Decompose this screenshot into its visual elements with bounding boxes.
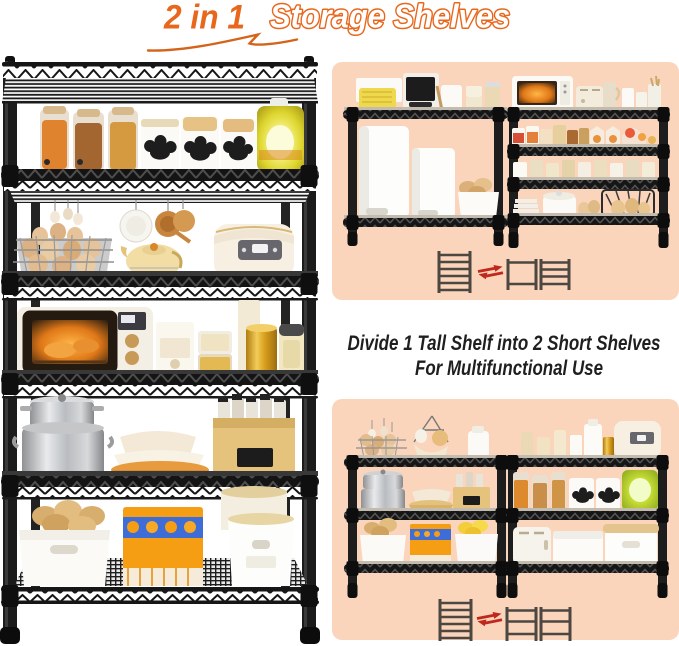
svg-text:Divide 1 Tall Shelf into 2 Sho: Divide 1 Tall Shelf into 2 Short Shelves — [348, 331, 661, 355]
svg-text:Storage Shelves: Storage Shelves — [270, 0, 510, 35]
svg-text:For Multifunctional Use: For Multifunctional Use — [415, 356, 603, 380]
svg-text:2 in 1: 2 in 1 — [163, 0, 245, 37]
